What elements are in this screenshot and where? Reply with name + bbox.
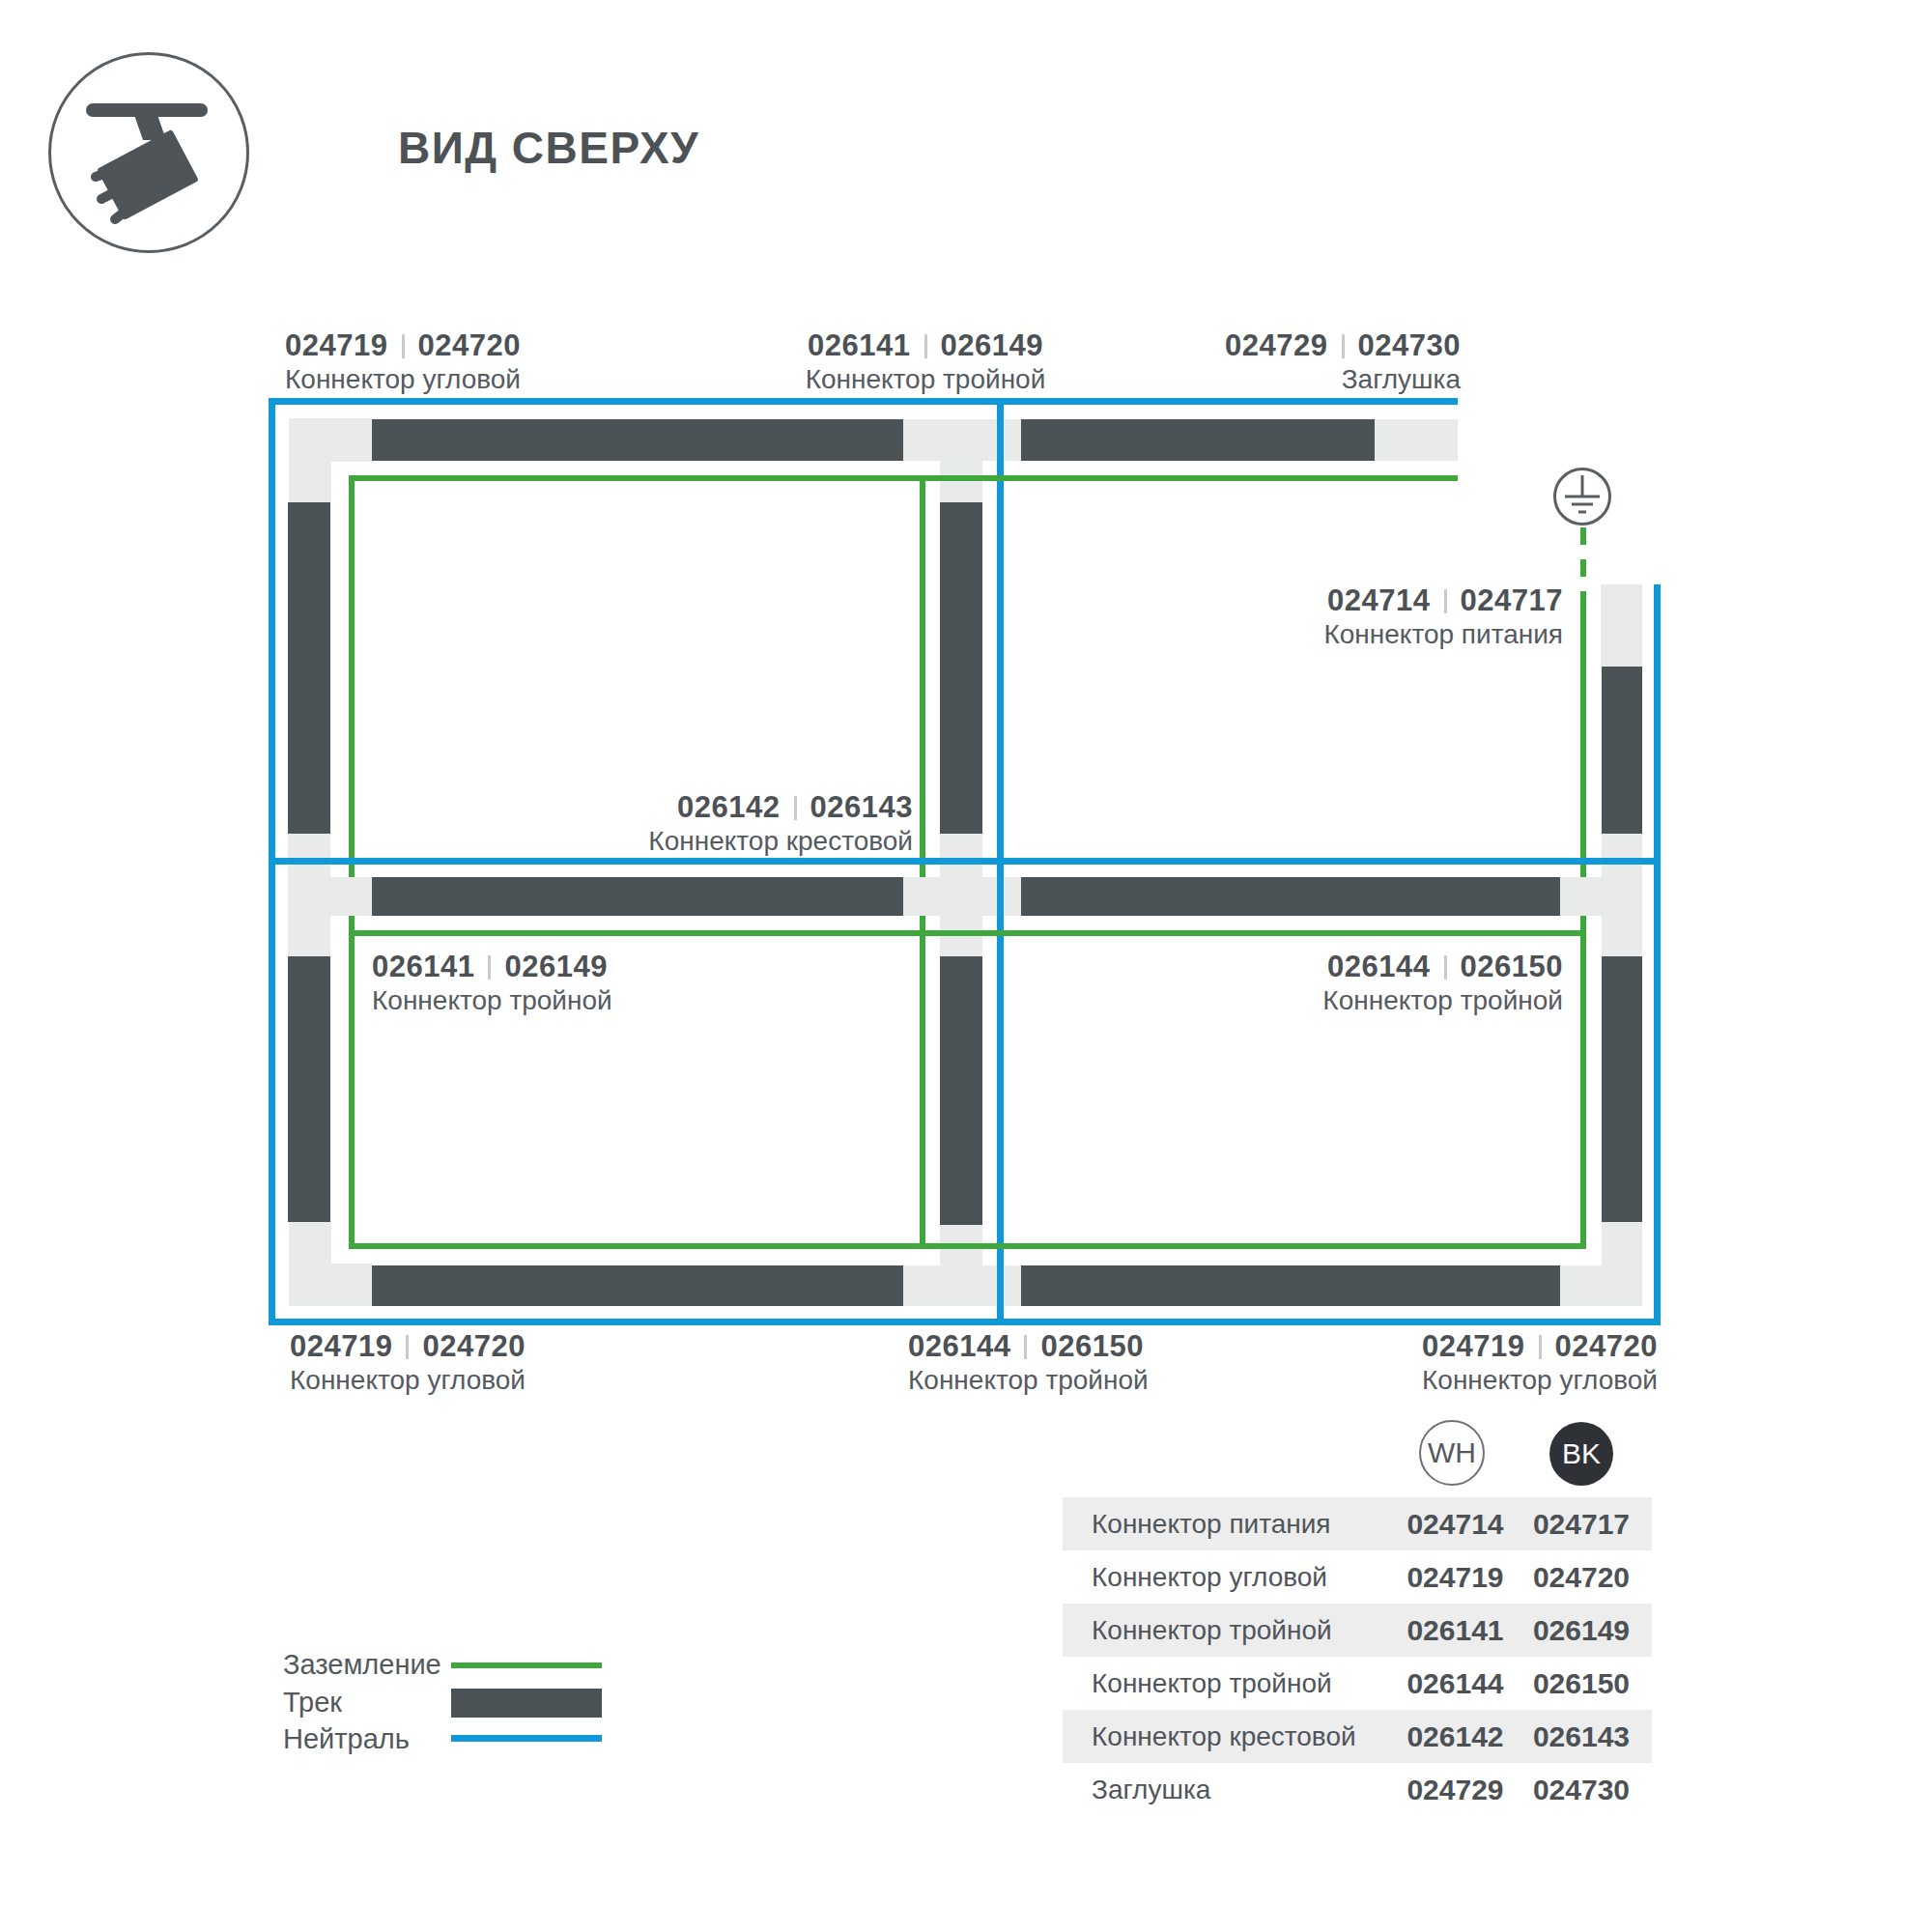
label-corner-top-left: 024719024720 Коннектор угловой bbox=[210, 328, 596, 396]
row-wh-code: 026141 bbox=[1400, 1614, 1511, 1647]
divider bbox=[406, 1335, 409, 1359]
part-numbers: 024719024720 bbox=[290, 1329, 676, 1364]
part-numbers: 024719024720 bbox=[1271, 1329, 1658, 1364]
ground-line-middle-horizontal bbox=[349, 930, 1586, 936]
corner-connector-top-left-arm bbox=[289, 418, 331, 502]
divider bbox=[488, 955, 491, 980]
parts-table: Коннектор питания 024714 024717 Коннекто… bbox=[1063, 1497, 1652, 1816]
t-connector-middle-left bbox=[288, 834, 330, 956]
part-name: Коннектор угловой bbox=[1271, 1364, 1658, 1397]
divider bbox=[1444, 589, 1447, 613]
label-power-connector: 024714024717 Коннектор питания bbox=[1177, 583, 1563, 651]
neutral-line-top bbox=[269, 398, 1458, 405]
part-numbers: 026144026150 bbox=[1177, 950, 1563, 984]
part-name: Коннектор угловой bbox=[210, 363, 596, 396]
row-name: Коннектор питания bbox=[1063, 1509, 1400, 1540]
legend-swatch-ground-line bbox=[451, 1662, 602, 1668]
row-wh-code: 024714 bbox=[1400, 1508, 1511, 1541]
divider bbox=[794, 796, 797, 820]
legend-label-track: Трек bbox=[283, 1687, 342, 1719]
cross-connector-stem bbox=[940, 834, 982, 956]
label-corner-bottom-left: 024719024720 Коннектор угловой bbox=[290, 1329, 676, 1397]
part-name: Коннектор тройной bbox=[732, 363, 1119, 396]
table-row: Коннектор тройной 026144 026150 bbox=[1063, 1657, 1652, 1710]
row-wh-code: 026142 bbox=[1400, 1720, 1511, 1753]
row-name: Коннектор тройной bbox=[1063, 1615, 1400, 1646]
neutral-line-middle-vertical bbox=[997, 398, 1004, 1325]
ground-line-bottom bbox=[349, 1243, 1586, 1249]
label-t-top-middle: 026141026149 Коннектор тройной bbox=[732, 328, 1119, 396]
label-t-bottom-middle: 026144026150 Коннектор тройной bbox=[908, 1329, 1294, 1397]
track-right-lower-segment bbox=[1602, 956, 1642, 1222]
ground-line-top bbox=[349, 475, 1458, 481]
divider bbox=[1024, 1335, 1027, 1359]
t-connector-middle-left-arm bbox=[330, 877, 372, 916]
track-top-right-segment bbox=[1021, 419, 1375, 461]
track-left-upper-segment bbox=[288, 502, 330, 834]
divider bbox=[402, 334, 405, 358]
part-numbers: 024714024717 bbox=[1177, 583, 1563, 618]
part-name: Коннектор тройной bbox=[1177, 984, 1563, 1017]
label-cross-connector: 026142026143 Коннектор крестовой bbox=[526, 790, 913, 858]
track-middle-left-segment bbox=[372, 877, 903, 916]
legend-swatch-neutral-line bbox=[451, 1735, 602, 1742]
variant-badge-white: WH bbox=[1419, 1420, 1485, 1486]
track-left-lower-segment bbox=[288, 956, 330, 1222]
t-connector-top-middle-arm bbox=[940, 461, 982, 502]
row-wh-code: 024729 bbox=[1400, 1774, 1511, 1806]
row-name: Коннектор крестовой bbox=[1063, 1721, 1400, 1752]
row-bk-code: 026150 bbox=[1511, 1667, 1652, 1700]
part-numbers: 026142026143 bbox=[526, 790, 913, 825]
track-middle-right-segment bbox=[1021, 877, 1560, 916]
page-title: ВИД СВЕРХУ bbox=[398, 122, 699, 174]
part-name: Коннектор тройной bbox=[908, 1364, 1294, 1397]
divider bbox=[924, 334, 927, 358]
part-name: Коннектор питания bbox=[1177, 618, 1563, 651]
track-right-upper-segment bbox=[1602, 667, 1642, 836]
legend-swatch-track-bar bbox=[451, 1689, 602, 1718]
part-numbers: 026141026149 bbox=[372, 950, 758, 984]
corner-connector-bottom-left bbox=[289, 1264, 372, 1306]
row-bk-code: 026143 bbox=[1511, 1720, 1652, 1753]
t-connector-middle-right bbox=[1602, 834, 1642, 956]
variant-badge-black: BK bbox=[1549, 1422, 1613, 1486]
legend-label-ground: Заземление bbox=[283, 1649, 441, 1681]
row-name: Коннектор угловой bbox=[1063, 1562, 1400, 1593]
row-wh-code: 026144 bbox=[1400, 1667, 1511, 1700]
part-numbers: 026141026149 bbox=[732, 328, 1119, 363]
track-bottom-left-segment bbox=[372, 1265, 903, 1306]
track-spotlight-icon bbox=[48, 52, 249, 253]
ground-line-dashed-feed bbox=[1580, 527, 1586, 591]
table-row: Заглушка 024729 024730 bbox=[1063, 1763, 1652, 1816]
neutral-line-middle-horizontal bbox=[269, 858, 1661, 865]
track-center-lower-segment bbox=[940, 956, 982, 1225]
label-corner-bottom-right: 024719024720 Коннектор угловой bbox=[1271, 1329, 1658, 1397]
row-name: Заглушка bbox=[1063, 1775, 1400, 1805]
table-row: Коннектор крестовой 026142 026143 bbox=[1063, 1710, 1652, 1763]
track-center-upper-segment bbox=[940, 502, 982, 834]
row-name: Коннектор тройной bbox=[1063, 1668, 1400, 1699]
row-wh-code: 024719 bbox=[1400, 1561, 1511, 1594]
earth-ground-icon bbox=[1553, 468, 1611, 526]
corner-connector-bottom-right bbox=[1560, 1265, 1642, 1306]
table-row: Коннектор тройной 026141 026149 bbox=[1063, 1604, 1652, 1657]
end-cap-connector bbox=[1375, 419, 1458, 461]
row-bk-code: 024730 bbox=[1511, 1774, 1652, 1806]
t-connector-middle-right-arm bbox=[1560, 877, 1602, 916]
label-t-middle-left: 026141026149 Коннектор тройной bbox=[372, 950, 758, 1017]
neutral-line-right bbox=[1654, 584, 1661, 1325]
label-end-cap: 024729024730 Заглушка bbox=[1074, 328, 1461, 396]
table-row: Коннектор питания 024714 024717 bbox=[1063, 1497, 1652, 1550]
divider bbox=[1539, 1335, 1542, 1359]
part-numbers: 026144026150 bbox=[908, 1329, 1294, 1364]
ground-line-right-vertical bbox=[1580, 591, 1586, 1249]
part-name: Заглушка bbox=[1074, 363, 1461, 396]
table-row: Коннектор угловой 024719 024720 bbox=[1063, 1550, 1652, 1604]
part-name: Коннектор угловой bbox=[290, 1364, 676, 1397]
divider bbox=[1342, 334, 1345, 358]
track-top-left-segment bbox=[372, 419, 903, 461]
label-t-middle-right: 026144026150 Коннектор тройной bbox=[1177, 950, 1563, 1017]
row-bk-code: 024717 bbox=[1511, 1508, 1652, 1541]
row-bk-code: 026149 bbox=[1511, 1614, 1652, 1647]
spotlight-glyph bbox=[51, 55, 246, 250]
divider bbox=[1444, 955, 1447, 980]
track-bottom-right-segment bbox=[1021, 1265, 1560, 1306]
part-name: Коннектор тройной bbox=[372, 984, 758, 1017]
power-connector bbox=[1601, 584, 1642, 667]
part-name: Коннектор крестовой bbox=[526, 825, 913, 858]
row-bk-code: 024720 bbox=[1511, 1561, 1652, 1594]
part-numbers: 024729024730 bbox=[1074, 328, 1461, 363]
neutral-line-bottom bbox=[269, 1319, 1661, 1325]
part-numbers: 024719024720 bbox=[210, 328, 596, 363]
legend-label-neutral: Нейтраль bbox=[283, 1723, 410, 1755]
